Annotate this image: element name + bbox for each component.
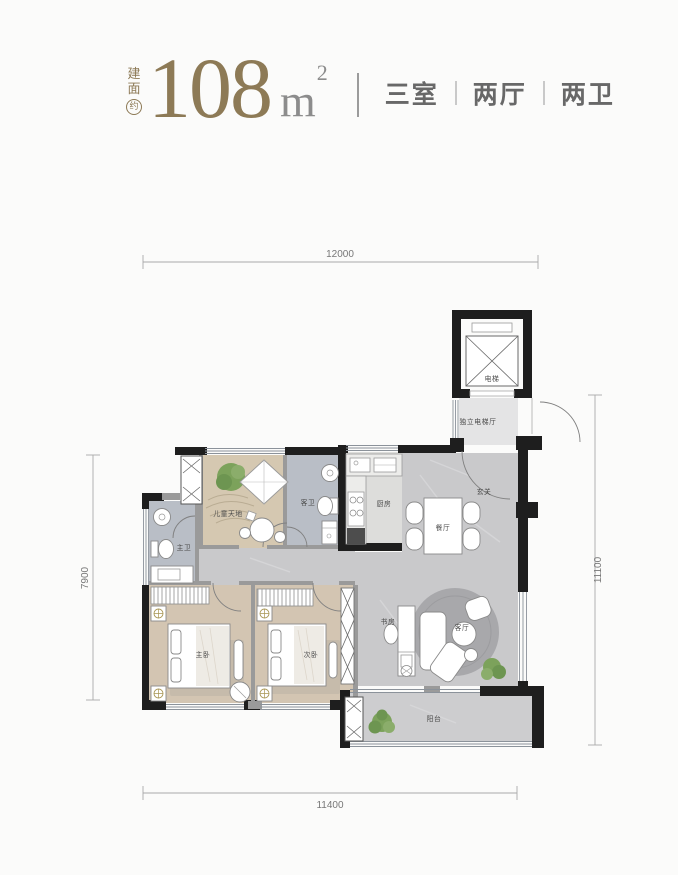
ac-unit-balcony bbox=[345, 697, 363, 741]
room-label-kitchen: 厨房 bbox=[377, 499, 392, 508]
room-label-elevator-hall: 独立电梯厅 bbox=[460, 417, 497, 426]
room-label-balcony: 阳台 bbox=[427, 714, 442, 723]
room-label-master-bed: 主卧 bbox=[196, 650, 211, 659]
dim-left: 7900 bbox=[80, 566, 91, 589]
room-label-guest-bath: 客卫 bbox=[301, 498, 316, 507]
nightstand bbox=[151, 686, 166, 701]
room-label-elevator: 电梯 bbox=[485, 374, 500, 383]
elevator-shaft: 电梯 bbox=[452, 310, 532, 398]
floorplan-page: 建 面 约 108 m2 三室 两厅 两卫 bbox=[0, 0, 678, 875]
floor-plan: 12000 11400 7900 11100 电 bbox=[0, 0, 678, 875]
room-label-living: 客厅 bbox=[455, 623, 470, 632]
nightstand bbox=[151, 606, 166, 621]
nightstand bbox=[257, 606, 272, 621]
dim-bottom: 11400 bbox=[316, 800, 344, 811]
room-label-dining: 餐厅 bbox=[436, 523, 451, 532]
room-label-study: 书房 bbox=[381, 617, 396, 626]
dim-right: 11100 bbox=[593, 556, 604, 583]
dim-top: 12000 bbox=[326, 249, 354, 260]
room-label-second-bed: 次卧 bbox=[304, 650, 319, 659]
room-label-master-bath: 主卫 bbox=[177, 543, 192, 552]
nightstand bbox=[257, 686, 272, 701]
ac-unit-top bbox=[181, 456, 202, 504]
hall-door-arc bbox=[540, 402, 580, 442]
room-label-entry: 玄关 bbox=[477, 487, 492, 496]
hall-window bbox=[453, 400, 458, 438]
room-label-kids: 儿童天地 bbox=[213, 509, 243, 518]
